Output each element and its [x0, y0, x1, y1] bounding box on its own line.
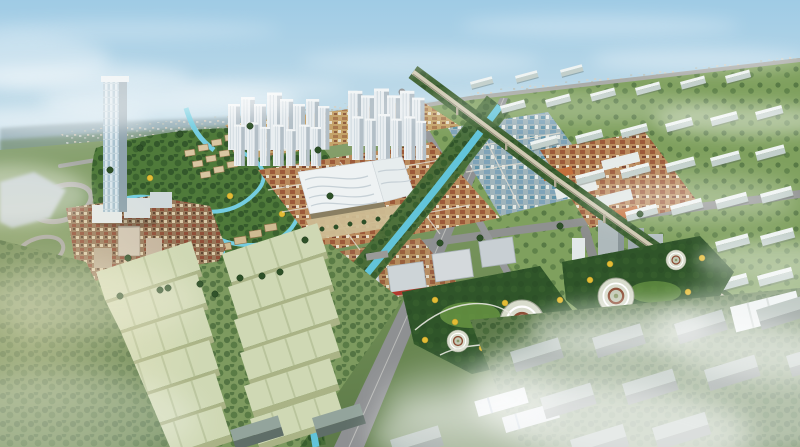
render-canvas	[0, 0, 800, 447]
aerial-city-rendering	[0, 0, 800, 447]
